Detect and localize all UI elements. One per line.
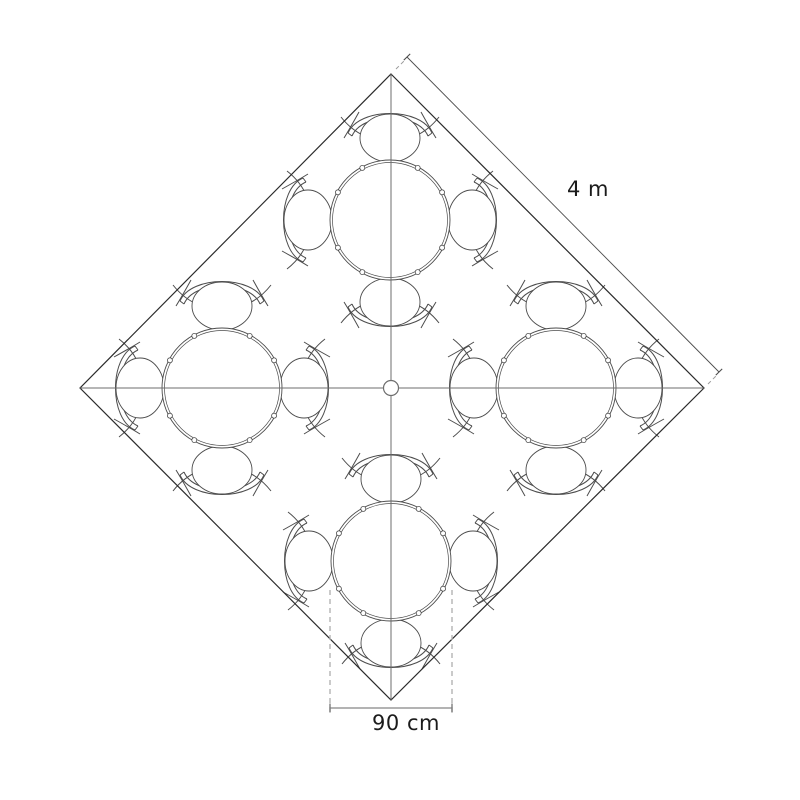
table-dimension-label: 90 cm: [372, 712, 440, 735]
table-edge-node: [360, 270, 365, 275]
chair-seat: [192, 446, 252, 494]
table-edge-node: [361, 506, 366, 511]
chair-seat: [448, 190, 496, 250]
chair: [341, 278, 439, 328]
table-group-top: [282, 112, 498, 328]
table-edge-node: [272, 358, 277, 363]
chair-seat: [526, 282, 586, 330]
chair-seat: [360, 114, 420, 162]
chair: [173, 446, 271, 496]
table-edge-node: [360, 165, 365, 170]
extension-dash: [708, 375, 717, 384]
table-edge-node: [581, 438, 586, 443]
table-edge-node: [441, 531, 446, 536]
center-marker: [384, 381, 399, 396]
table-edge-node: [247, 333, 252, 338]
table-edge-node: [526, 333, 531, 338]
table-top: [330, 160, 450, 280]
table-edge-node: [192, 333, 197, 338]
chair-seat: [526, 446, 586, 494]
chair-seat: [449, 531, 497, 591]
table-edge-node: [581, 333, 586, 338]
chair: [449, 512, 499, 610]
table-edge-node: [501, 413, 506, 418]
chair-seat: [192, 282, 252, 330]
chair: [173, 280, 271, 330]
chair: [448, 171, 498, 269]
table-edge-node: [167, 413, 172, 418]
table-edge-node: [192, 438, 197, 443]
edge-dimension-label: 4 m: [567, 178, 609, 201]
table-edge-node: [335, 190, 340, 195]
chair-seat: [285, 531, 333, 591]
chair: [507, 280, 605, 330]
table-edge-node: [336, 531, 341, 536]
table-edge-node: [606, 413, 611, 418]
chair: [282, 171, 332, 269]
table-edge-node: [247, 438, 252, 443]
table-edge-node: [416, 611, 421, 616]
table-edge-node: [416, 506, 421, 511]
table-edge-node: [440, 190, 445, 195]
table-edge-node: [606, 358, 611, 363]
table-edge-node: [415, 270, 420, 275]
table-edge-node: [336, 586, 341, 591]
chair: [341, 112, 439, 162]
table-edge-node: [441, 586, 446, 591]
floor-plan: 4 m 90 cm: [0, 0, 800, 800]
chair: [283, 512, 333, 610]
chair-seat: [360, 278, 420, 326]
table-edge-node: [501, 358, 506, 363]
table-edge-node: [272, 413, 277, 418]
table-edge-node: [335, 245, 340, 250]
extension-dash: [396, 60, 405, 69]
chair-seat: [284, 190, 332, 250]
table-edge-node: [415, 165, 420, 170]
table-edge-node: [361, 611, 366, 616]
table-edge-node: [440, 245, 445, 250]
table-edge-node: [526, 438, 531, 443]
chair: [507, 446, 605, 496]
floor-plan-drawing: [0, 0, 800, 800]
table-edge-node: [167, 358, 172, 363]
